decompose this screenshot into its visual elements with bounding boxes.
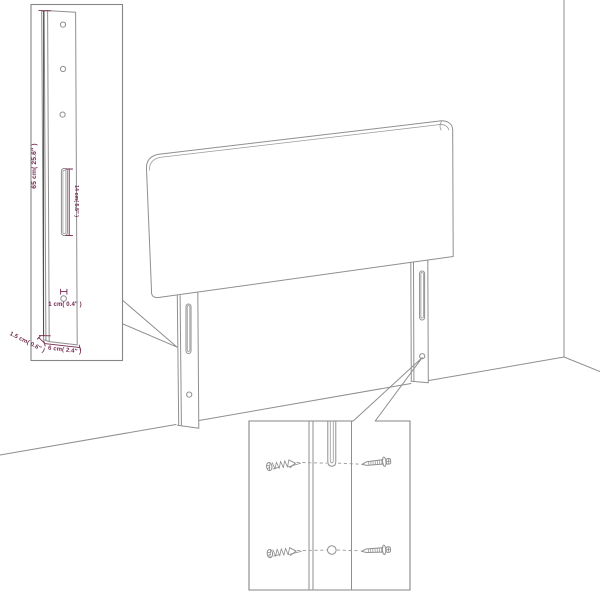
- headboard-panel: [146, 121, 453, 298]
- callout-lines-left: [123, 301, 177, 348]
- inset-small-hole: [61, 296, 67, 302]
- screw-side-top-icon: [361, 456, 391, 468]
- inset-screw-detail: [249, 421, 410, 590]
- dim-14cm-label: 14 cm( 5.5″ ): [73, 185, 79, 217]
- inset-hole-3: [60, 112, 65, 117]
- callout-lines-right: [353, 358, 422, 421]
- headboard: [146, 121, 453, 429]
- leg-right-slot: [420, 271, 425, 320]
- inset-leg-strip: [309, 421, 352, 590]
- dim-1cm-label: 1 cm( 0.4″ ): [48, 302, 81, 308]
- headboard-leg-right: [411, 260, 429, 383]
- diagram-stage: 65 cm( 25.6″ ) 14 cm( 5.5″ ) 1 cm( 0.4″ …: [0, 0, 600, 600]
- dim-65cm-label: 65 cm( 25.6″ ): [31, 143, 38, 188]
- inset-right-box: [249, 421, 410, 590]
- inset-strip-hole: [328, 546, 337, 555]
- screw-leader-dashes: [297, 462, 361, 550]
- headboard-leg-left: [177, 293, 199, 428]
- inset-leg-dimensions: 65 cm( 25.6″ ) 14 cm( 5.5″ ) 1 cm( 0.4″ …: [8, 5, 122, 361]
- floor-line-right: [564, 357, 600, 372]
- diagram-canvas: 65 cm( 25.6″ ) 14 cm( 5.5″ ) 1 cm( 0.4″ …: [0, 0, 600, 600]
- leg-left-slot: [186, 304, 191, 354]
- leg-left-hole: [187, 392, 192, 397]
- inset-hole-2: [60, 66, 65, 71]
- floor-line-left: [0, 357, 564, 455]
- screw-hatched-bottom-icon: [267, 546, 302, 558]
- inset-hole-1: [60, 22, 65, 27]
- screw-side-bottom-icon: [361, 545, 390, 556]
- screw-hatched-top-icon: [266, 458, 301, 471]
- inset-strip-slot: [328, 421, 336, 466]
